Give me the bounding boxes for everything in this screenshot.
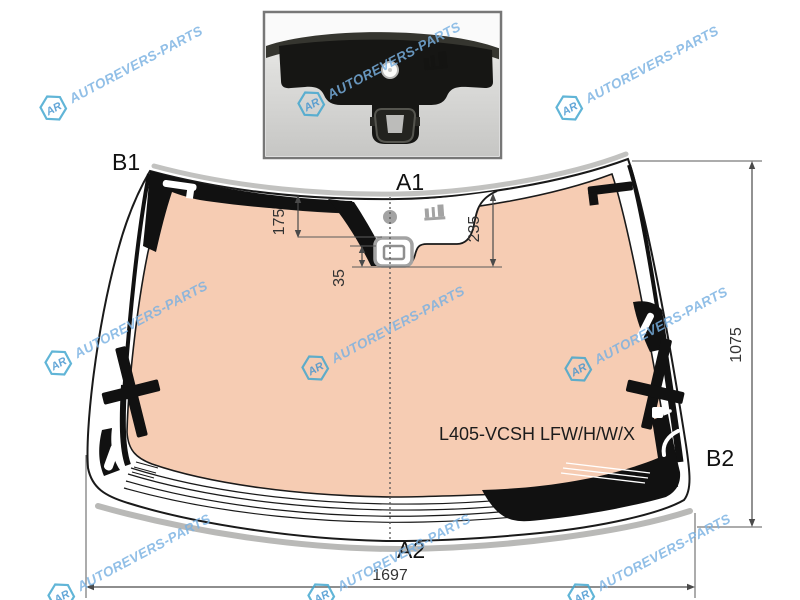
camera-bracket-icon <box>375 238 412 266</box>
dim-1075-text: 1075 <box>728 327 745 363</box>
label-b2: B2 <box>706 445 734 471</box>
label-a1: A1 <box>396 169 424 195</box>
inset-sensor-hole-center <box>388 68 392 72</box>
label-b1: B1 <box>112 149 140 175</box>
label-a2: A2 <box>397 537 425 563</box>
windshield-diagram-page: 175 35 235 1075 1697 B1 A1 B2 A2 L405-VC… <box>0 0 800 600</box>
inset-camera-bracket-icon <box>370 109 420 142</box>
dim-175-text: 175 <box>271 209 288 236</box>
dim-235-text: 235 <box>466 216 483 243</box>
part-number: L405-VCSH LFW/H/W/X <box>439 424 635 444</box>
dim-35-text: 35 <box>331 269 348 287</box>
dim-1697-text: 1697 <box>372 567 408 584</box>
windshield-diagram: 175 35 235 1075 1697 B1 A1 B2 A2 L405-VC… <box>0 0 800 600</box>
inset-photo <box>264 12 501 158</box>
